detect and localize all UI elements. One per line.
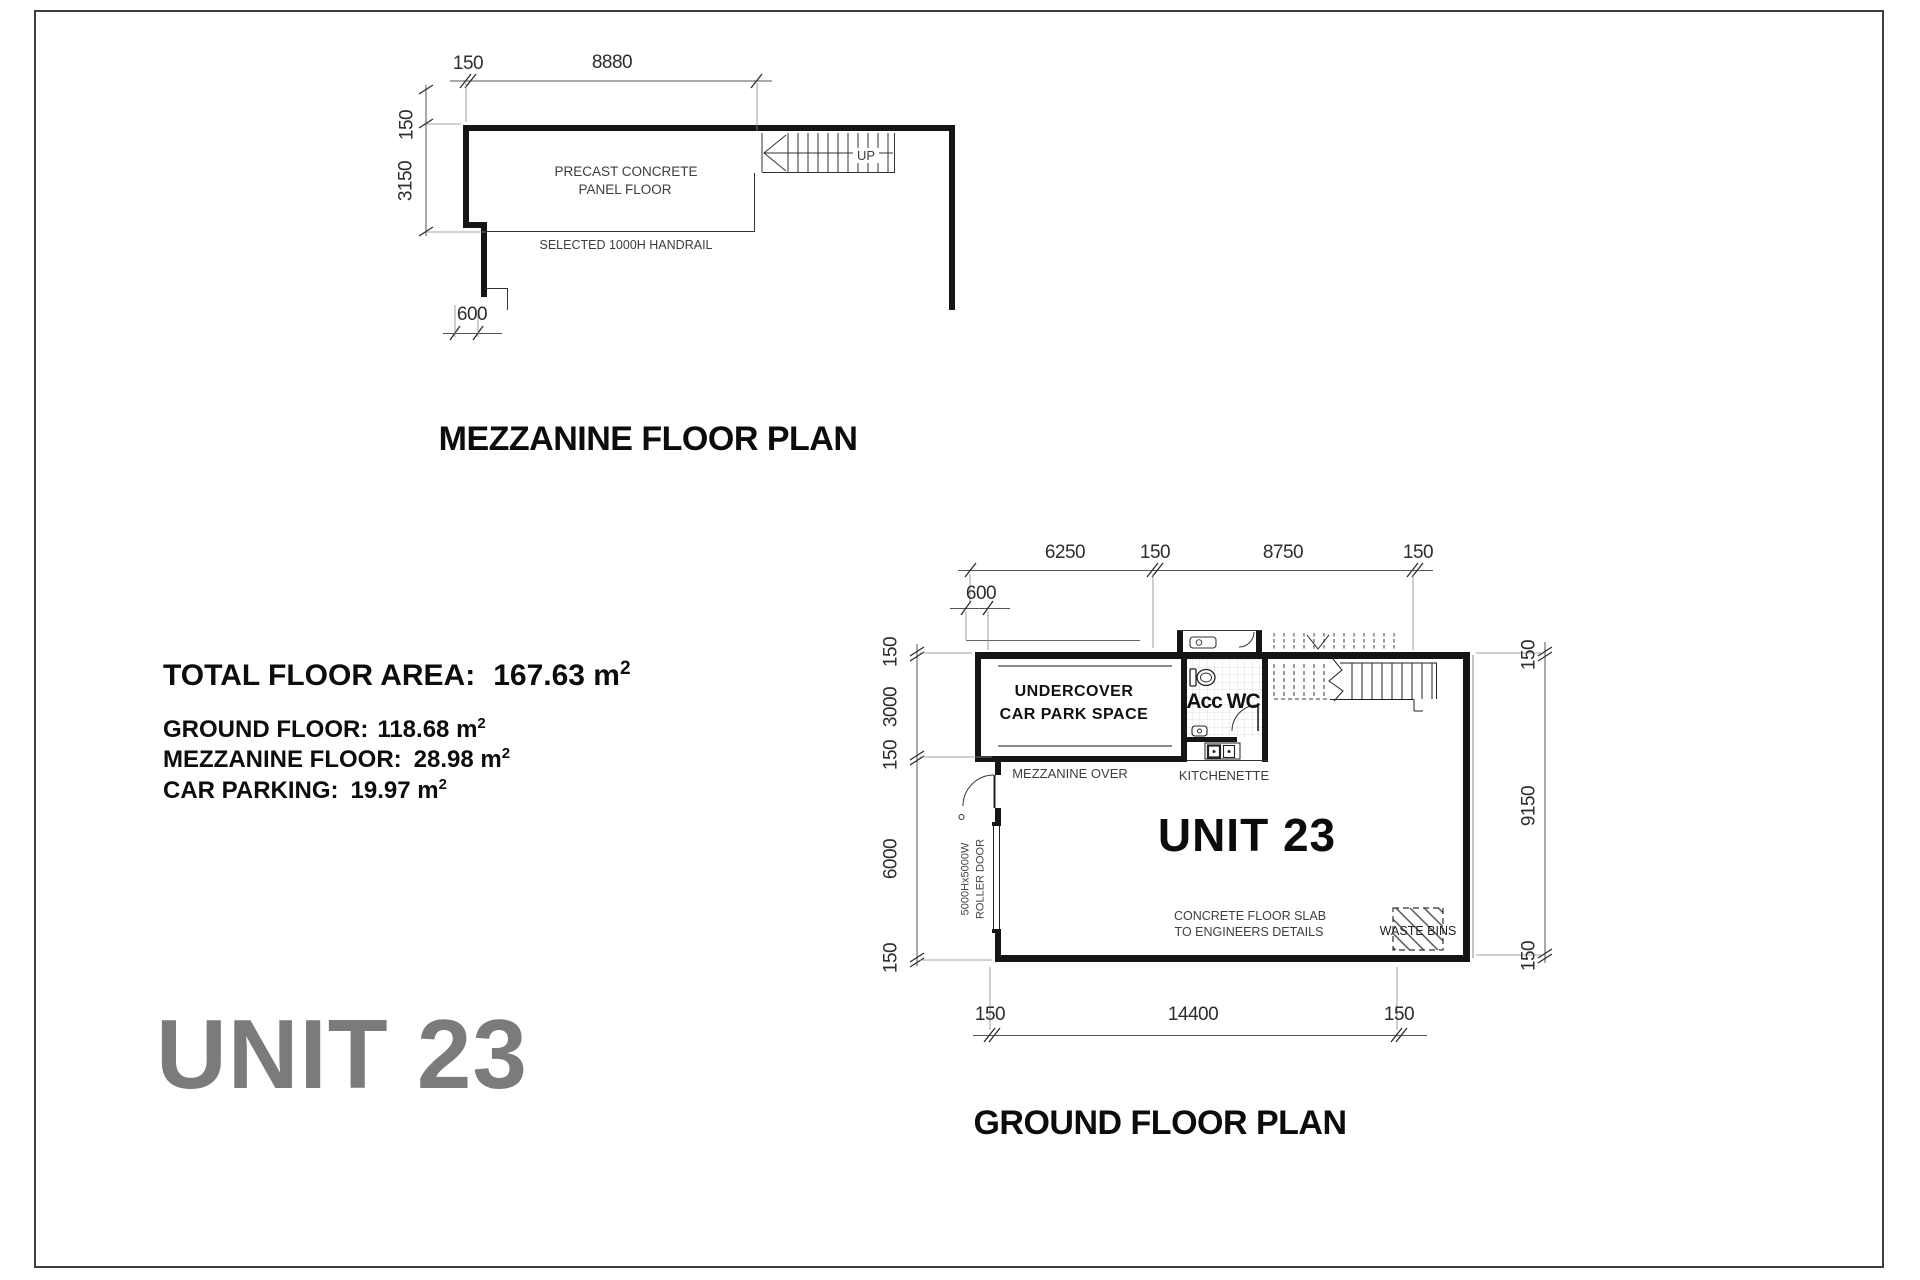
mezz-floor-label-line2: PANEL FLOOR xyxy=(578,183,671,197)
gf-dim-bottom-150a: 150 xyxy=(975,1005,1005,1024)
unit-banner: UNIT 23 xyxy=(156,1005,528,1103)
total-floor-area-value: 167.63 m xyxy=(493,659,620,692)
gf-dim-left-150c: 150 xyxy=(882,943,901,973)
gf-dim-left-3000: 3000 xyxy=(882,687,901,727)
wc-label: Acc WC xyxy=(1186,691,1259,712)
mezz-floor-label-line1: PRECAST CONCRETE xyxy=(554,165,697,179)
area-superscript: 2 xyxy=(439,776,447,793)
car-parking-area-value: 19.97 m xyxy=(351,777,439,804)
area-superscript: 2 xyxy=(477,715,485,732)
gf-dim-right-9150: 9150 xyxy=(1520,786,1539,826)
waste-bins-label: WASTE BINS xyxy=(1380,925,1457,938)
ground-floor-area-value: 118.68 m xyxy=(377,716,477,743)
mezz-up-label: UP xyxy=(853,148,879,163)
mezzanine-plan-title: MEZZANINE FLOOR PLAN xyxy=(439,422,858,456)
car-parking-area-label: CAR PARKING: xyxy=(163,777,339,804)
total-area-superscript: 2 xyxy=(620,658,631,679)
gf-dim-top-150a: 150 xyxy=(1140,543,1170,562)
gf-dim-left-150a: 150 xyxy=(882,637,901,667)
mezz-dim-600: 600 xyxy=(457,305,487,324)
gf-dim-top-8750: 8750 xyxy=(1263,543,1303,562)
ground-plan-title: GROUND FLOOR PLAN xyxy=(973,1106,1346,1140)
mezzanine-floor-area-value: 28.98 m xyxy=(414,746,502,773)
ground-floor-area: GROUND FLOOR:118.68 m2 xyxy=(163,718,486,742)
carpark-label-line2: CAR PARK SPACE xyxy=(1000,707,1149,723)
gf-unit-label: UNIT 23 xyxy=(1158,812,1336,858)
gf-dim-right-150a: 150 xyxy=(1520,640,1539,670)
gf-dim-left-6000: 6000 xyxy=(882,839,901,879)
kitchenette-label: KITCHENETTE xyxy=(1179,769,1269,782)
mezzanine-floor-plan-drawing xyxy=(340,48,980,348)
mezz-dim-left-150: 150 xyxy=(398,110,417,140)
slab-note-line1: CONCRETE FLOOR SLAB xyxy=(1174,910,1326,923)
area-superscript: 2 xyxy=(502,745,510,762)
gf-dim-left-150b: 150 xyxy=(882,740,901,770)
carpark-label-line1: UNDERCOVER xyxy=(1015,684,1134,700)
drawing-sheet: 150 8880 150 3150 600 PRECAST CONCRETE P… xyxy=(0,0,1920,1280)
slab-note-line2: TO ENGINEERS DETAILS xyxy=(1175,926,1324,939)
gf-dim-top-6250: 6250 xyxy=(1045,543,1085,562)
mezzanine-over-label: MEZZANINE OVER xyxy=(1012,767,1128,780)
roller-door-label-line1: 5000Hx5000W xyxy=(961,843,972,916)
gf-dim-right-150b: 150 xyxy=(1520,941,1539,971)
mezz-dim-left-3150: 3150 xyxy=(397,161,416,201)
mezz-dim-top-8880: 8880 xyxy=(592,53,632,72)
car-parking-area: CAR PARKING:19.97 m2 xyxy=(163,779,447,803)
gf-dim-top-150b: 150 xyxy=(1403,543,1433,562)
mezzanine-floor-area-label: MEZZANINE FLOOR: xyxy=(163,746,402,773)
total-floor-area: TOTAL FLOOR AREA:167.63 m2 xyxy=(163,661,631,691)
gf-dim-bottom-14400: 14400 xyxy=(1168,1005,1218,1024)
gf-dim-600: 600 xyxy=(966,584,996,603)
roller-door-label-line2: ROLLER DOOR xyxy=(976,839,987,919)
gf-dim-bottom-150b: 150 xyxy=(1384,1005,1414,1024)
ground-floor-area-label: GROUND FLOOR: xyxy=(163,716,368,743)
mezz-dim-top-150: 150 xyxy=(453,54,483,73)
mezz-handrail-label: SELECTED 1000H HANDRAIL xyxy=(540,239,713,252)
mezzanine-floor-area: MEZZANINE FLOOR:28.98 m2 xyxy=(163,748,510,772)
total-floor-area-label: TOTAL FLOOR AREA: xyxy=(163,659,475,692)
